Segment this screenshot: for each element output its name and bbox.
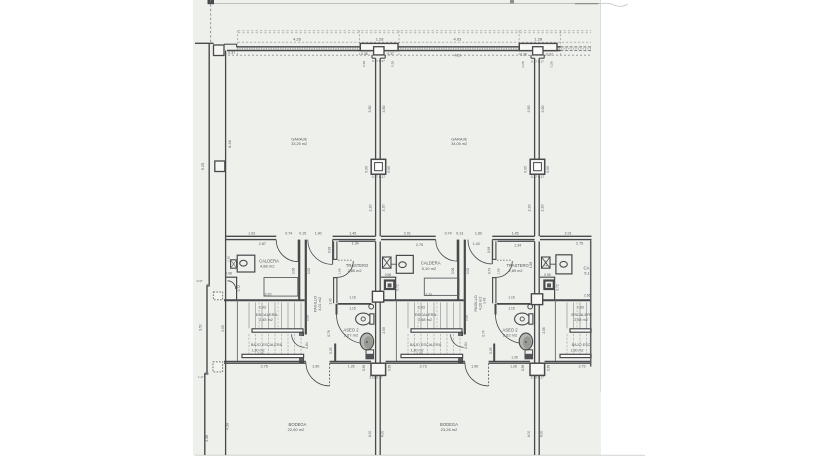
- svg-text:0.74: 0.74: [445, 231, 452, 235]
- svg-text:3.02: 3.02: [307, 268, 311, 275]
- svg-text:4.00: 4.00: [539, 431, 543, 438]
- svg-text:1.39: 1.39: [511, 355, 518, 359]
- svg-text:1.34: 1.34: [352, 242, 359, 246]
- svg-text:0.74: 0.74: [285, 231, 292, 235]
- svg-text:0.37: 0.37: [546, 53, 553, 57]
- svg-text:0.84: 0.84: [464, 342, 468, 348]
- svg-text:4,01 m2: 4,01 m2: [318, 297, 322, 311]
- svg-text:CALDERA: CALDERA: [421, 261, 441, 266]
- svg-text:0.56: 0.56: [385, 273, 392, 277]
- svg-text:2.20: 2.20: [528, 205, 532, 212]
- svg-text:0.84: 0.84: [305, 342, 309, 348]
- svg-text:ESCALERA: ESCALERA: [256, 312, 278, 317]
- svg-text:0.15: 0.15: [299, 231, 306, 235]
- svg-text:4.00: 4.00: [527, 431, 531, 438]
- svg-text:PASILLO: PASILLO: [313, 296, 318, 312]
- svg-text:0.38: 0.38: [520, 53, 527, 57]
- svg-text:4.23: 4.23: [454, 54, 461, 58]
- svg-text:2.75: 2.75: [261, 364, 268, 368]
- svg-text:2.01: 2.01: [565, 231, 572, 235]
- svg-text:1.93: 1.93: [248, 231, 255, 235]
- svg-text:2,58 m2: 2,58 m2: [574, 318, 588, 322]
- svg-text:2,62 m2: 2,62 m2: [503, 333, 518, 338]
- svg-text:2.75: 2.75: [576, 241, 583, 245]
- svg-text:3.19 0.17: 3.19 0.17: [531, 376, 545, 380]
- svg-text:2,58 m2: 2,58 m2: [418, 318, 432, 322]
- svg-text:34,05 m2: 34,05 m2: [451, 142, 467, 146]
- svg-text:0.74: 0.74: [482, 330, 486, 336]
- svg-text:1.34: 1.34: [514, 243, 521, 247]
- svg-text:2.79: 2.79: [579, 365, 586, 369]
- svg-text:1,30 m2: 1,30 m2: [571, 348, 584, 352]
- svg-text:2.20: 2.20: [425, 293, 432, 297]
- svg-text:1.90: 1.90: [315, 231, 322, 235]
- svg-text:0.37: 0.37: [197, 279, 203, 283]
- svg-text:1.26: 1.26: [348, 365, 355, 369]
- svg-text:2.01: 2.01: [404, 231, 411, 235]
- svg-text:PASILLO: PASILLO: [473, 295, 478, 311]
- svg-text:3.50: 3.50: [382, 106, 386, 113]
- svg-text:0.98: 0.98: [305, 315, 309, 321]
- svg-text:0.38: 0.38: [362, 365, 366, 371]
- svg-text:3.50: 3.50: [198, 324, 202, 331]
- svg-text:4.26: 4.26: [293, 37, 302, 42]
- svg-text:2.93: 2.93: [259, 305, 266, 309]
- svg-text:4.00: 4.00: [368, 431, 372, 438]
- svg-text:BAJO ESCALERA: BAJO ESCALERA: [410, 343, 442, 347]
- svg-text:1.28: 1.28: [534, 37, 543, 42]
- svg-text:0.13: 0.13: [456, 231, 463, 235]
- svg-text:1.26: 1.26: [510, 365, 517, 369]
- svg-text:0.25: 0.25: [521, 61, 525, 67]
- svg-text:5,10 m2: 5,10 m2: [422, 266, 437, 271]
- svg-text:2.20: 2.20: [382, 205, 386, 212]
- svg-text:0.74: 0.74: [488, 268, 492, 274]
- svg-text:0.98: 0.98: [328, 247, 332, 253]
- svg-text:0.17 0.17: 0.17 0.17: [531, 175, 545, 179]
- svg-text:33,25 m2: 33,25 m2: [291, 142, 307, 146]
- svg-text:0.72: 0.72: [556, 284, 560, 290]
- svg-text:1.43: 1.43: [328, 298, 332, 304]
- svg-text:0.90: 0.90: [364, 166, 368, 173]
- svg-text:0.38: 0.38: [547, 365, 551, 371]
- svg-text:2,89 m2: 2,89 m2: [508, 268, 522, 273]
- svg-text:4.39: 4.39: [226, 423, 230, 430]
- svg-text:0.25: 0.25: [362, 61, 366, 67]
- svg-text:1.28: 1.28: [376, 37, 385, 42]
- svg-text:4,20 m2: 4,20 m2: [478, 297, 482, 311]
- svg-text:1.45: 1.45: [512, 231, 519, 235]
- svg-text:3.50: 3.50: [368, 106, 372, 113]
- svg-text:1.20: 1.20: [226, 256, 230, 262]
- svg-text:2.93: 2.93: [418, 305, 425, 309]
- svg-text:0.90: 0.90: [523, 166, 527, 173]
- svg-text:2,85 m2: 2,85 m2: [347, 268, 361, 273]
- svg-text:3.50: 3.50: [541, 106, 545, 113]
- svg-text:2.20: 2.20: [265, 292, 272, 296]
- svg-text:0.90: 0.90: [546, 166, 550, 173]
- svg-text:0.93: 0.93: [329, 347, 333, 353]
- svg-text:GARAJE: GARAJE: [291, 137, 307, 142]
- svg-text:1.43: 1.43: [483, 297, 487, 303]
- svg-text:0.17 0.17: 0.17 0.17: [372, 175, 386, 179]
- svg-text:0.98: 0.98: [487, 247, 491, 253]
- svg-text:0.98: 0.98: [464, 315, 468, 321]
- svg-text:0.37: 0.37: [228, 51, 235, 55]
- svg-text:2.20: 2.20: [369, 205, 373, 212]
- svg-text:5,1: 5,1: [584, 270, 590, 275]
- svg-text:9.25: 9.25: [201, 163, 205, 170]
- svg-text:2.93: 2.93: [577, 305, 584, 309]
- svg-text:1.68: 1.68: [529, 262, 533, 268]
- svg-text:0.17 0.17: 0.17 0.17: [531, 60, 544, 64]
- svg-text:0.25: 0.25: [390, 61, 394, 67]
- svg-text:BAJO ESCALERA: BAJO ESCALERA: [251, 343, 283, 347]
- svg-text:2.73: 2.73: [420, 364, 427, 368]
- svg-text:BAJO ESC: BAJO ESC: [572, 343, 591, 347]
- svg-text:ESCALERA: ESCALERA: [415, 312, 437, 317]
- svg-text:0.25: 0.25: [549, 61, 553, 67]
- svg-text:0.93: 0.93: [489, 347, 493, 353]
- svg-text:0.38: 0.38: [388, 365, 392, 371]
- svg-text:2,45 m2: 2,45 m2: [259, 318, 273, 322]
- svg-text:2.90: 2.90: [221, 325, 225, 332]
- svg-text:1.16: 1.16: [508, 295, 515, 299]
- svg-text:1.80: 1.80: [475, 231, 482, 235]
- svg-text:1.15: 1.15: [349, 307, 356, 311]
- svg-text:4,88 m2: 4,88 m2: [260, 263, 275, 268]
- svg-text:22,60 m2: 22,60 m2: [288, 427, 305, 432]
- svg-text:1.90: 1.90: [312, 364, 319, 368]
- svg-text:2.06: 2.06: [542, 327, 546, 333]
- svg-text:4.00: 4.00: [380, 431, 384, 438]
- svg-text:0.55: 0.55: [544, 273, 551, 277]
- svg-text:1.40: 1.40: [473, 242, 480, 246]
- svg-text:0.72: 0.72: [237, 285, 241, 291]
- svg-text:2.87: 2.87: [259, 242, 266, 246]
- svg-text:1.08: 1.08: [496, 268, 500, 274]
- svg-text:3.06: 3.06: [292, 268, 296, 275]
- svg-text:2,67 m2: 2,67 m2: [344, 333, 359, 338]
- svg-text:2.66: 2.66: [584, 294, 591, 298]
- svg-text:0.38: 0.38: [521, 365, 525, 371]
- svg-text:2.20: 2.20: [541, 205, 545, 212]
- svg-text:ESCALERA: ESCALERA: [571, 312, 593, 317]
- svg-text:0.98: 0.98: [225, 271, 232, 275]
- svg-text:0.38: 0.38: [361, 52, 368, 56]
- svg-text:6.46: 6.46: [228, 140, 232, 147]
- svg-text:3.02: 3.02: [466, 268, 470, 275]
- svg-text:3.50: 3.50: [527, 106, 531, 113]
- svg-text:2.75: 2.75: [416, 243, 423, 247]
- svg-text:1.08: 1.08: [337, 268, 341, 274]
- svg-text:GARAJE: GARAJE: [451, 137, 467, 142]
- svg-text:4.03: 4.03: [454, 37, 463, 42]
- svg-text:0.90: 0.90: [387, 166, 391, 173]
- svg-text:0.17 0.17: 0.17 0.17: [372, 59, 385, 63]
- svg-text:23,26 m2: 23,26 m2: [441, 427, 458, 432]
- svg-text:2.90: 2.90: [382, 327, 386, 334]
- svg-text:1.16: 1.16: [349, 295, 356, 299]
- svg-text:4.36: 4.36: [205, 435, 209, 442]
- svg-text:1.37: 1.37: [544, 260, 548, 266]
- svg-text:3.19 0.17: 3.19 0.17: [369, 376, 383, 380]
- svg-text:0.76: 0.76: [327, 330, 331, 336]
- svg-text:0.37: 0.37: [387, 52, 394, 56]
- svg-text:1.17: 1.17: [198, 375, 204, 379]
- svg-text:3.06: 3.06: [451, 268, 455, 275]
- svg-text:1.15: 1.15: [508, 307, 515, 311]
- svg-text:1.90: 1.90: [471, 364, 478, 368]
- svg-text:1.45: 1.45: [349, 231, 356, 235]
